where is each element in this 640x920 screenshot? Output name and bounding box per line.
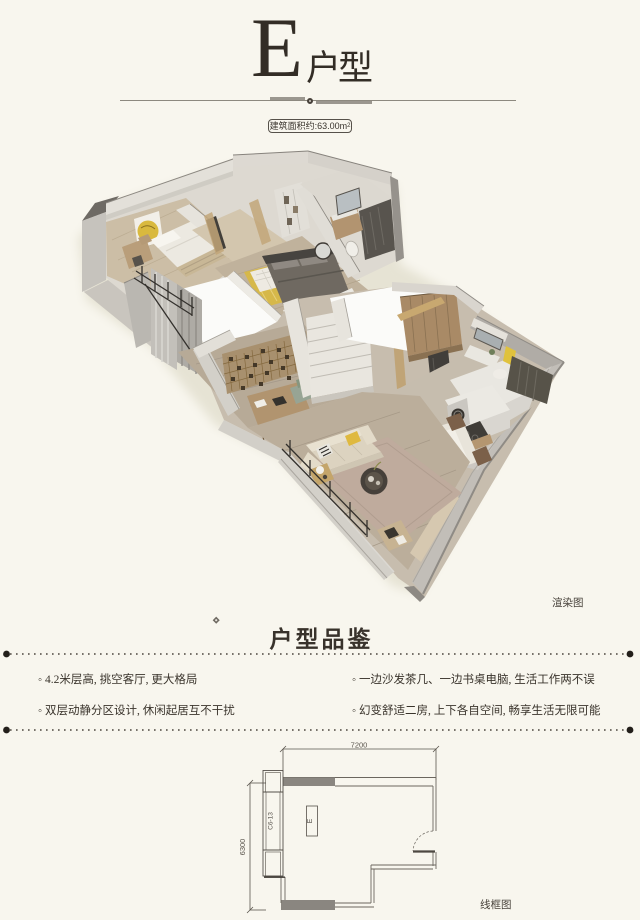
- svg-text:6300: 6300: [238, 839, 247, 856]
- svg-text:7200: 7200: [351, 741, 368, 750]
- svg-text:E: E: [307, 818, 314, 823]
- svg-text:C6-13: C6-13: [268, 812, 275, 830]
